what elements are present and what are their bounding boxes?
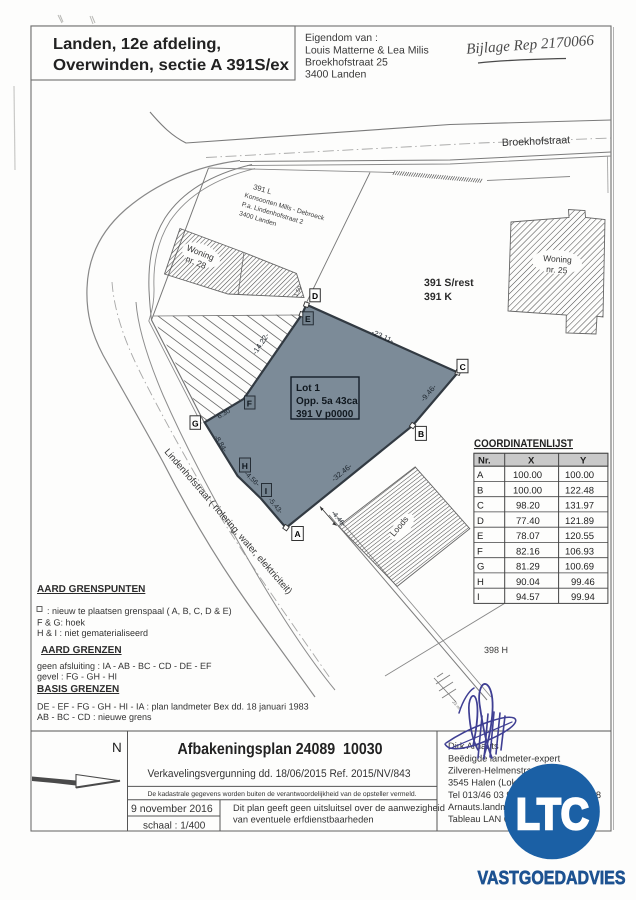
svg-text:geen afsluiting : IA - AB - BC: geen afsluiting : IA - AB - BC - CD - DE… bbox=[37, 661, 212, 671]
svg-text:AARD GRENZEN: AARD GRENZEN bbox=[41, 645, 122, 656]
svg-text:82.16: 82.16 bbox=[516, 546, 540, 557]
svg-text:98.20: 98.20 bbox=[516, 501, 540, 512]
svg-text:A: A bbox=[295, 529, 301, 539]
svg-text:81.29: 81.29 bbox=[516, 562, 540, 573]
svg-text:Landen, 12e afdeling,: Landen, 12e afdeling, bbox=[53, 36, 221, 53]
svg-text:E: E bbox=[477, 531, 483, 542]
svg-text:9 november 2016: 9 november 2016 bbox=[131, 803, 213, 815]
svg-text:B: B bbox=[418, 429, 424, 439]
svg-text:99.46: 99.46 bbox=[571, 577, 595, 588]
svg-text:Broekhofstraat 25: Broekhofstraat 25 bbox=[305, 57, 388, 69]
svg-text:VASTGOEDADVIES: VASTGOEDADVIES bbox=[478, 868, 626, 889]
svg-text:F: F bbox=[247, 398, 252, 408]
svg-text:E: E bbox=[305, 314, 311, 324]
svg-text:121.89: 121.89 bbox=[565, 516, 594, 527]
svg-text:391 S/rest: 391 S/rest bbox=[424, 277, 474, 289]
svg-text:100.00: 100.00 bbox=[513, 470, 542, 481]
svg-text:: nieuw te plaatsen grenspaal: : nieuw te plaatsen grenspaal ( A, B, C,… bbox=[47, 606, 232, 616]
svg-text:Overwinden, sectie A 391S/ex: Overwinden, sectie A 391S/ex bbox=[53, 57, 289, 74]
svg-text:A: A bbox=[477, 470, 484, 481]
svg-text:78.07: 78.07 bbox=[516, 531, 540, 542]
svg-text:G: G bbox=[192, 418, 199, 428]
svg-text:94.57: 94.57 bbox=[516, 592, 540, 603]
svg-text:H: H bbox=[242, 461, 248, 471]
svg-text:Afbakeningsplan 24089 10030: Afbakeningsplan 24089 10030 bbox=[178, 741, 383, 758]
svg-text:Lot 1: Lot 1 bbox=[296, 383, 320, 394]
svg-text:Y: Y bbox=[580, 456, 587, 467]
svg-text:F & G: hoek: F & G: hoek bbox=[37, 618, 86, 628]
svg-text:C: C bbox=[477, 501, 484, 512]
svg-text:N: N bbox=[112, 740, 122, 755]
svg-text:LTC: LTC bbox=[516, 790, 589, 839]
svg-text:X: X bbox=[528, 456, 535, 467]
svg-text:Verkavelingsvergunning dd. 18/: Verkavelingsvergunning dd. 18/06/2015 Re… bbox=[148, 768, 411, 780]
svg-text:H: H bbox=[477, 577, 484, 588]
svg-text:H & I : niet gematerialiseerd: H & I : niet gematerialiseerd bbox=[37, 628, 148, 638]
svg-text:BASIS GRENZEN: BASIS GRENZEN bbox=[37, 684, 119, 695]
svg-text:100.00: 100.00 bbox=[565, 470, 594, 481]
svg-text:106.93: 106.93 bbox=[565, 546, 594, 557]
svg-text:nr. 25: nr. 25 bbox=[546, 264, 568, 275]
svg-text:C: C bbox=[460, 362, 466, 372]
svg-text:B: B bbox=[477, 485, 483, 496]
svg-text:van eventuele erfdienstbaarhed: van eventuele erfdienstbaarheden bbox=[233, 815, 374, 825]
svg-text:Eigendom van :: Eigendom van : bbox=[305, 32, 378, 44]
svg-text:G: G bbox=[477, 562, 484, 573]
svg-text:Opp. 5a 43ca: Opp. 5a 43ca bbox=[296, 396, 358, 407]
svg-text:90.04: 90.04 bbox=[516, 577, 540, 588]
svg-text:120.55: 120.55 bbox=[565, 531, 594, 542]
svg-text:100.00: 100.00 bbox=[513, 485, 542, 496]
svg-text:Dit plan geeft geen uitsluitse: Dit plan geeft geen uitsluitsel over de … bbox=[233, 803, 445, 813]
svg-text:D: D bbox=[312, 291, 318, 301]
svg-text:100.69: 100.69 bbox=[565, 562, 594, 573]
svg-text:Beëdigde landmeter-expert: Beëdigde landmeter-expert bbox=[448, 754, 561, 764]
svg-text:De kadastrale gegevens worden: De kadastrale gegevens worden buiten de … bbox=[147, 791, 416, 798]
svg-text:3400 Landen: 3400 Landen bbox=[305, 69, 366, 81]
svg-text:schaal : 1/400: schaal : 1/400 bbox=[143, 821, 206, 832]
svg-text:COORDINATENLIJST: COORDINATENLIJST bbox=[474, 438, 573, 450]
svg-text:DE - EF - FG - GH - HI - IA :: DE - EF - FG - GH - HI - IA : plan landm… bbox=[37, 702, 309, 712]
svg-text:77.40: 77.40 bbox=[516, 516, 540, 527]
svg-text:391 K: 391 K bbox=[424, 291, 452, 303]
svg-text:Nr.: Nr. bbox=[478, 456, 491, 467]
svg-text:D: D bbox=[477, 516, 484, 527]
svg-text:122.48: 122.48 bbox=[565, 485, 594, 496]
svg-text:gevel : FG - GH - HI: gevel : FG - GH - HI bbox=[37, 672, 117, 682]
svg-text:AB - BC - CD : nieuwe grens: AB - BC - CD : nieuwe grens bbox=[37, 712, 152, 722]
svg-text:I: I bbox=[265, 486, 267, 496]
svg-text:131.97: 131.97 bbox=[565, 501, 594, 512]
svg-text:Louis Matterne & Lea Milis: Louis Matterne & Lea Milis bbox=[305, 45, 429, 57]
svg-text:I: I bbox=[477, 592, 480, 603]
svg-text:F: F bbox=[477, 546, 483, 557]
svg-text:99.94: 99.94 bbox=[571, 592, 595, 603]
svg-text:AARD GRENSPUNTEN: AARD GRENSPUNTEN bbox=[37, 584, 145, 595]
svg-text:391 V p0000: 391 V p0000 bbox=[296, 409, 354, 420]
svg-text:398 H: 398 H bbox=[484, 645, 508, 655]
